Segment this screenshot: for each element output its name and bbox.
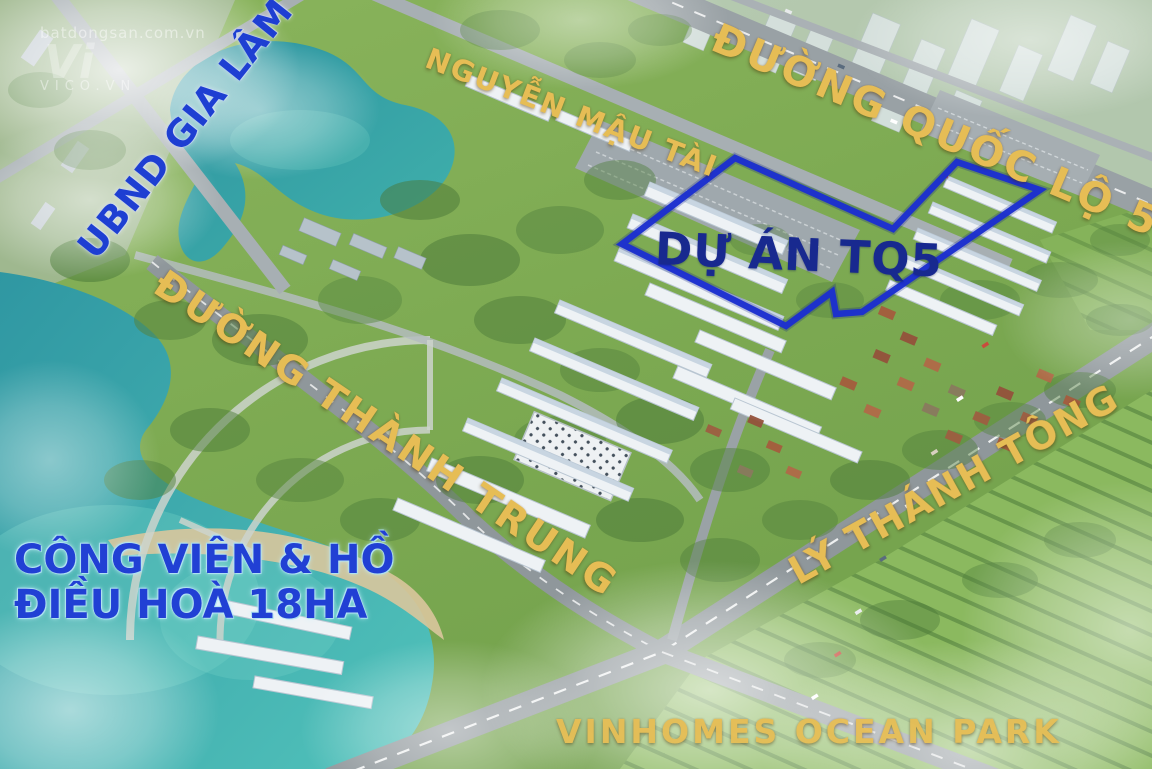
top-lake-shallow [230, 110, 370, 170]
watermark: batdongsan.com.vn Vi VICO.VN [40, 26, 206, 94]
label-vinhomes-ocean-park: VINHOMES OCEAN PARK [556, 712, 1062, 751]
label-park-lake: CÔNG VIÊN & HỒ ĐIỀU HOÀ 18HA [14, 538, 394, 628]
watermark-sub-text: VICO.VN [40, 80, 206, 94]
label-park-lake-line2: ĐIỀU HOÀ 18HA [14, 583, 394, 628]
label-park-lake-line1: CÔNG VIÊN & HỒ [14, 538, 394, 583]
campus-buildings [279, 218, 426, 281]
aerial-masterplan: batdongsan.com.vn Vi VICO.VN UBND GIA LÂ… [0, 0, 1152, 769]
